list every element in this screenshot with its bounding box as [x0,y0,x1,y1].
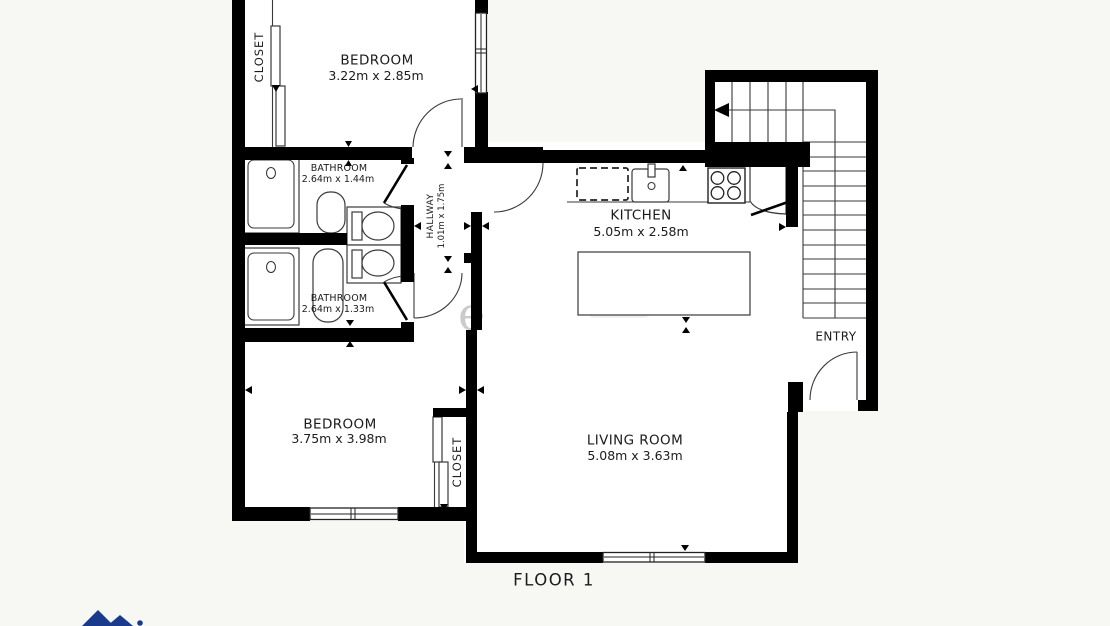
room-dimensions-bathroom-2: 2.64m x 1.33m [302,304,374,316]
stove [708,168,745,203]
room-floor [705,70,878,411]
wall-segment [466,417,477,563]
shower [243,155,299,233]
room-dimensions-bathroom-1: 2.64m x 1.44m [302,174,374,186]
wall-segment [232,507,310,521]
room-label-hallway: HALLWAY 1.01m x 1.75m [426,184,448,249]
room-dimensions-bedroom-2: 3.75m x 3.98m [291,431,386,447]
wall-segment [466,552,603,563]
kitchen-sink [632,164,669,202]
wall-segment [788,382,803,412]
wall-segment [475,0,488,14]
wall-segment [705,70,715,145]
wall-segment [787,412,798,563]
wall-segment [232,233,347,245]
room-label-kitchen: KITCHEN [610,208,671,225]
shower [243,248,299,325]
wall-segment [471,212,482,330]
kitchen-island [578,252,750,315]
room-label-bedroom-1: BEDROOM [340,53,413,70]
hallway-name: HALLWAY [426,184,437,249]
wall-segment [786,142,798,227]
wall-segment [433,408,477,417]
bedroom-1-window [476,13,487,93]
wall-segment [705,552,798,563]
wall-segment [466,330,477,408]
wall-segment [401,205,414,282]
corner-counter [750,163,786,214]
wall-segment [866,70,878,411]
room-dimensions-bedroom-1: 3.22m x 2.85m [328,68,423,84]
living-room-window [603,553,705,563]
room-label-entry: ENTRY [815,330,856,345]
room-label-closet-2: CLOSET [450,437,464,488]
logo-icon [82,610,143,626]
room-dimensions-living-room: 5.08m x 3.63m [587,448,682,464]
wall-segment [232,328,412,342]
floor-title: FLOOR 1 [513,571,595,592]
wall-segment [705,70,878,82]
room-label-living-room: LIVING ROOM [587,433,683,450]
wall-segment [475,92,488,160]
toilet [347,245,401,283]
bathtub [317,192,345,233]
hallway-dimensions: 1.01m x 1.75m [437,184,448,249]
wall-segment [232,0,245,521]
wall-segment [401,158,414,164]
wall-segment [398,507,412,521]
toilet [347,207,401,245]
wall-segment [232,147,412,160]
room-label-closet-1: CLOSET [252,32,266,83]
floor-plan-drawing: e [0,0,1110,626]
wall-segment [412,507,477,521]
bedroom-2-window [310,508,398,520]
wall-segment [464,253,471,263]
floor-plan: e [0,0,1110,626]
room-dimensions-kitchen: 5.05m x 2.58m [593,224,688,240]
